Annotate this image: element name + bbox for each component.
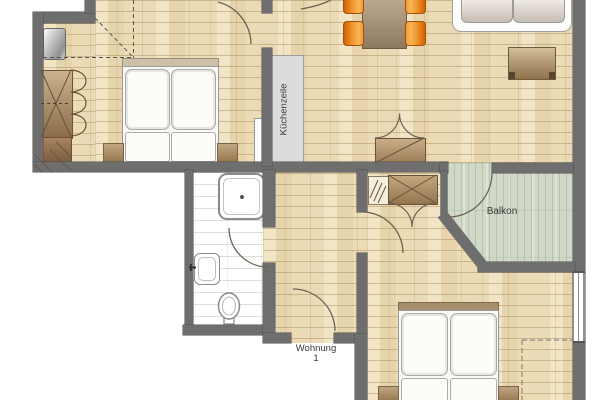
toilet xyxy=(219,293,240,324)
door-arc-top-partial xyxy=(301,0,331,9)
corner-hatch-lines xyxy=(34,142,71,172)
hall-closet-x-icon xyxy=(388,175,436,203)
door-arc-bedroom1 xyxy=(218,2,251,44)
shoe-rack-hatch xyxy=(370,180,386,203)
faucet-icon xyxy=(189,264,196,271)
kitchen-unit-label: Küchenzeile xyxy=(280,60,293,160)
living-closet-diagonal xyxy=(375,138,424,163)
wall-balcony-diagonal xyxy=(442,214,484,267)
roof-slope-dashed-bedroom2 xyxy=(522,340,573,400)
closet-doors-living-arcs xyxy=(375,114,424,139)
floor-plan: Küchenzeile Balkon Wohnung 1 xyxy=(0,0,600,400)
door-arc-bathroom xyxy=(229,228,268,267)
door-arc-entrance xyxy=(293,289,335,331)
apartment-label-line2: 1 xyxy=(313,353,318,364)
apartment-label: Wohnung 1 xyxy=(286,344,346,364)
wardrobe-door-scallops xyxy=(71,70,86,136)
roof-slope-dashed-bedroom1 xyxy=(43,0,134,58)
door-arc-bedroom2 xyxy=(362,212,403,253)
balcony-label: Balkon xyxy=(472,207,532,217)
plan-linework xyxy=(0,0,600,400)
closet-doors-hall-arcs xyxy=(388,203,436,227)
